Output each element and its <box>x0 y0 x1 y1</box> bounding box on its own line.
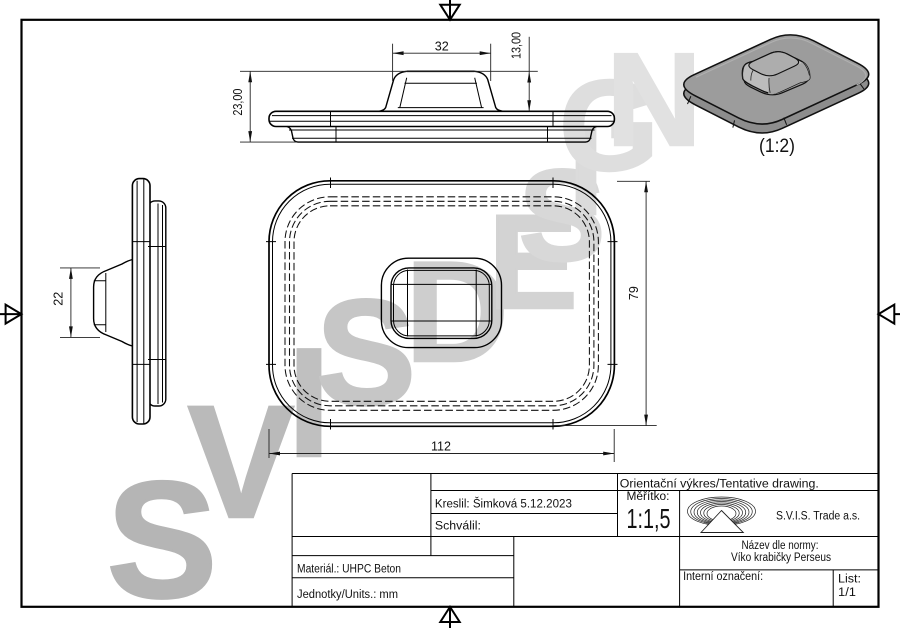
svg-text:Název dle normy:: Název dle normy: <box>742 540 819 552</box>
svg-text:Měřítko:: Měřítko: <box>627 491 670 503</box>
svg-text:112: 112 <box>431 439 451 454</box>
svg-text:1/1: 1/1 <box>838 587 856 599</box>
svg-text:Víko krabičky Perseus: Víko krabičky Perseus <box>731 552 831 564</box>
svg-text:(1:2): (1:2) <box>759 136 795 157</box>
svg-text:Interní označení:: Interní označení: <box>683 571 763 583</box>
svg-text:79: 79 <box>626 286 641 300</box>
svg-text:Kreslil: Šimková 5.12.2023: Kreslil: Šimková 5.12.2023 <box>435 498 572 511</box>
svg-text:Materiál.: UHPC Beton: Materiál.: UHPC Beton <box>297 564 401 576</box>
svg-text:Schválil:: Schválil: <box>435 521 481 533</box>
svg-text:Jednotky/Units.: mm: Jednotky/Units.: mm <box>297 589 398 601</box>
svg-text:32: 32 <box>435 39 449 54</box>
svg-text:S.V.I.S. Trade a.s.: S.V.I.S. Trade a.s. <box>776 511 860 523</box>
svg-text:13,00: 13,00 <box>508 32 523 59</box>
svg-text:23,00: 23,00 <box>230 89 245 116</box>
svg-text:List:: List: <box>838 573 861 585</box>
svg-text:Orientační výkres/Tentative dr: Orientační výkres/Tentative drawing. <box>620 478 819 490</box>
svg-text:22: 22 <box>51 292 66 306</box>
svg-text:1:1,5: 1:1,5 <box>627 503 671 534</box>
